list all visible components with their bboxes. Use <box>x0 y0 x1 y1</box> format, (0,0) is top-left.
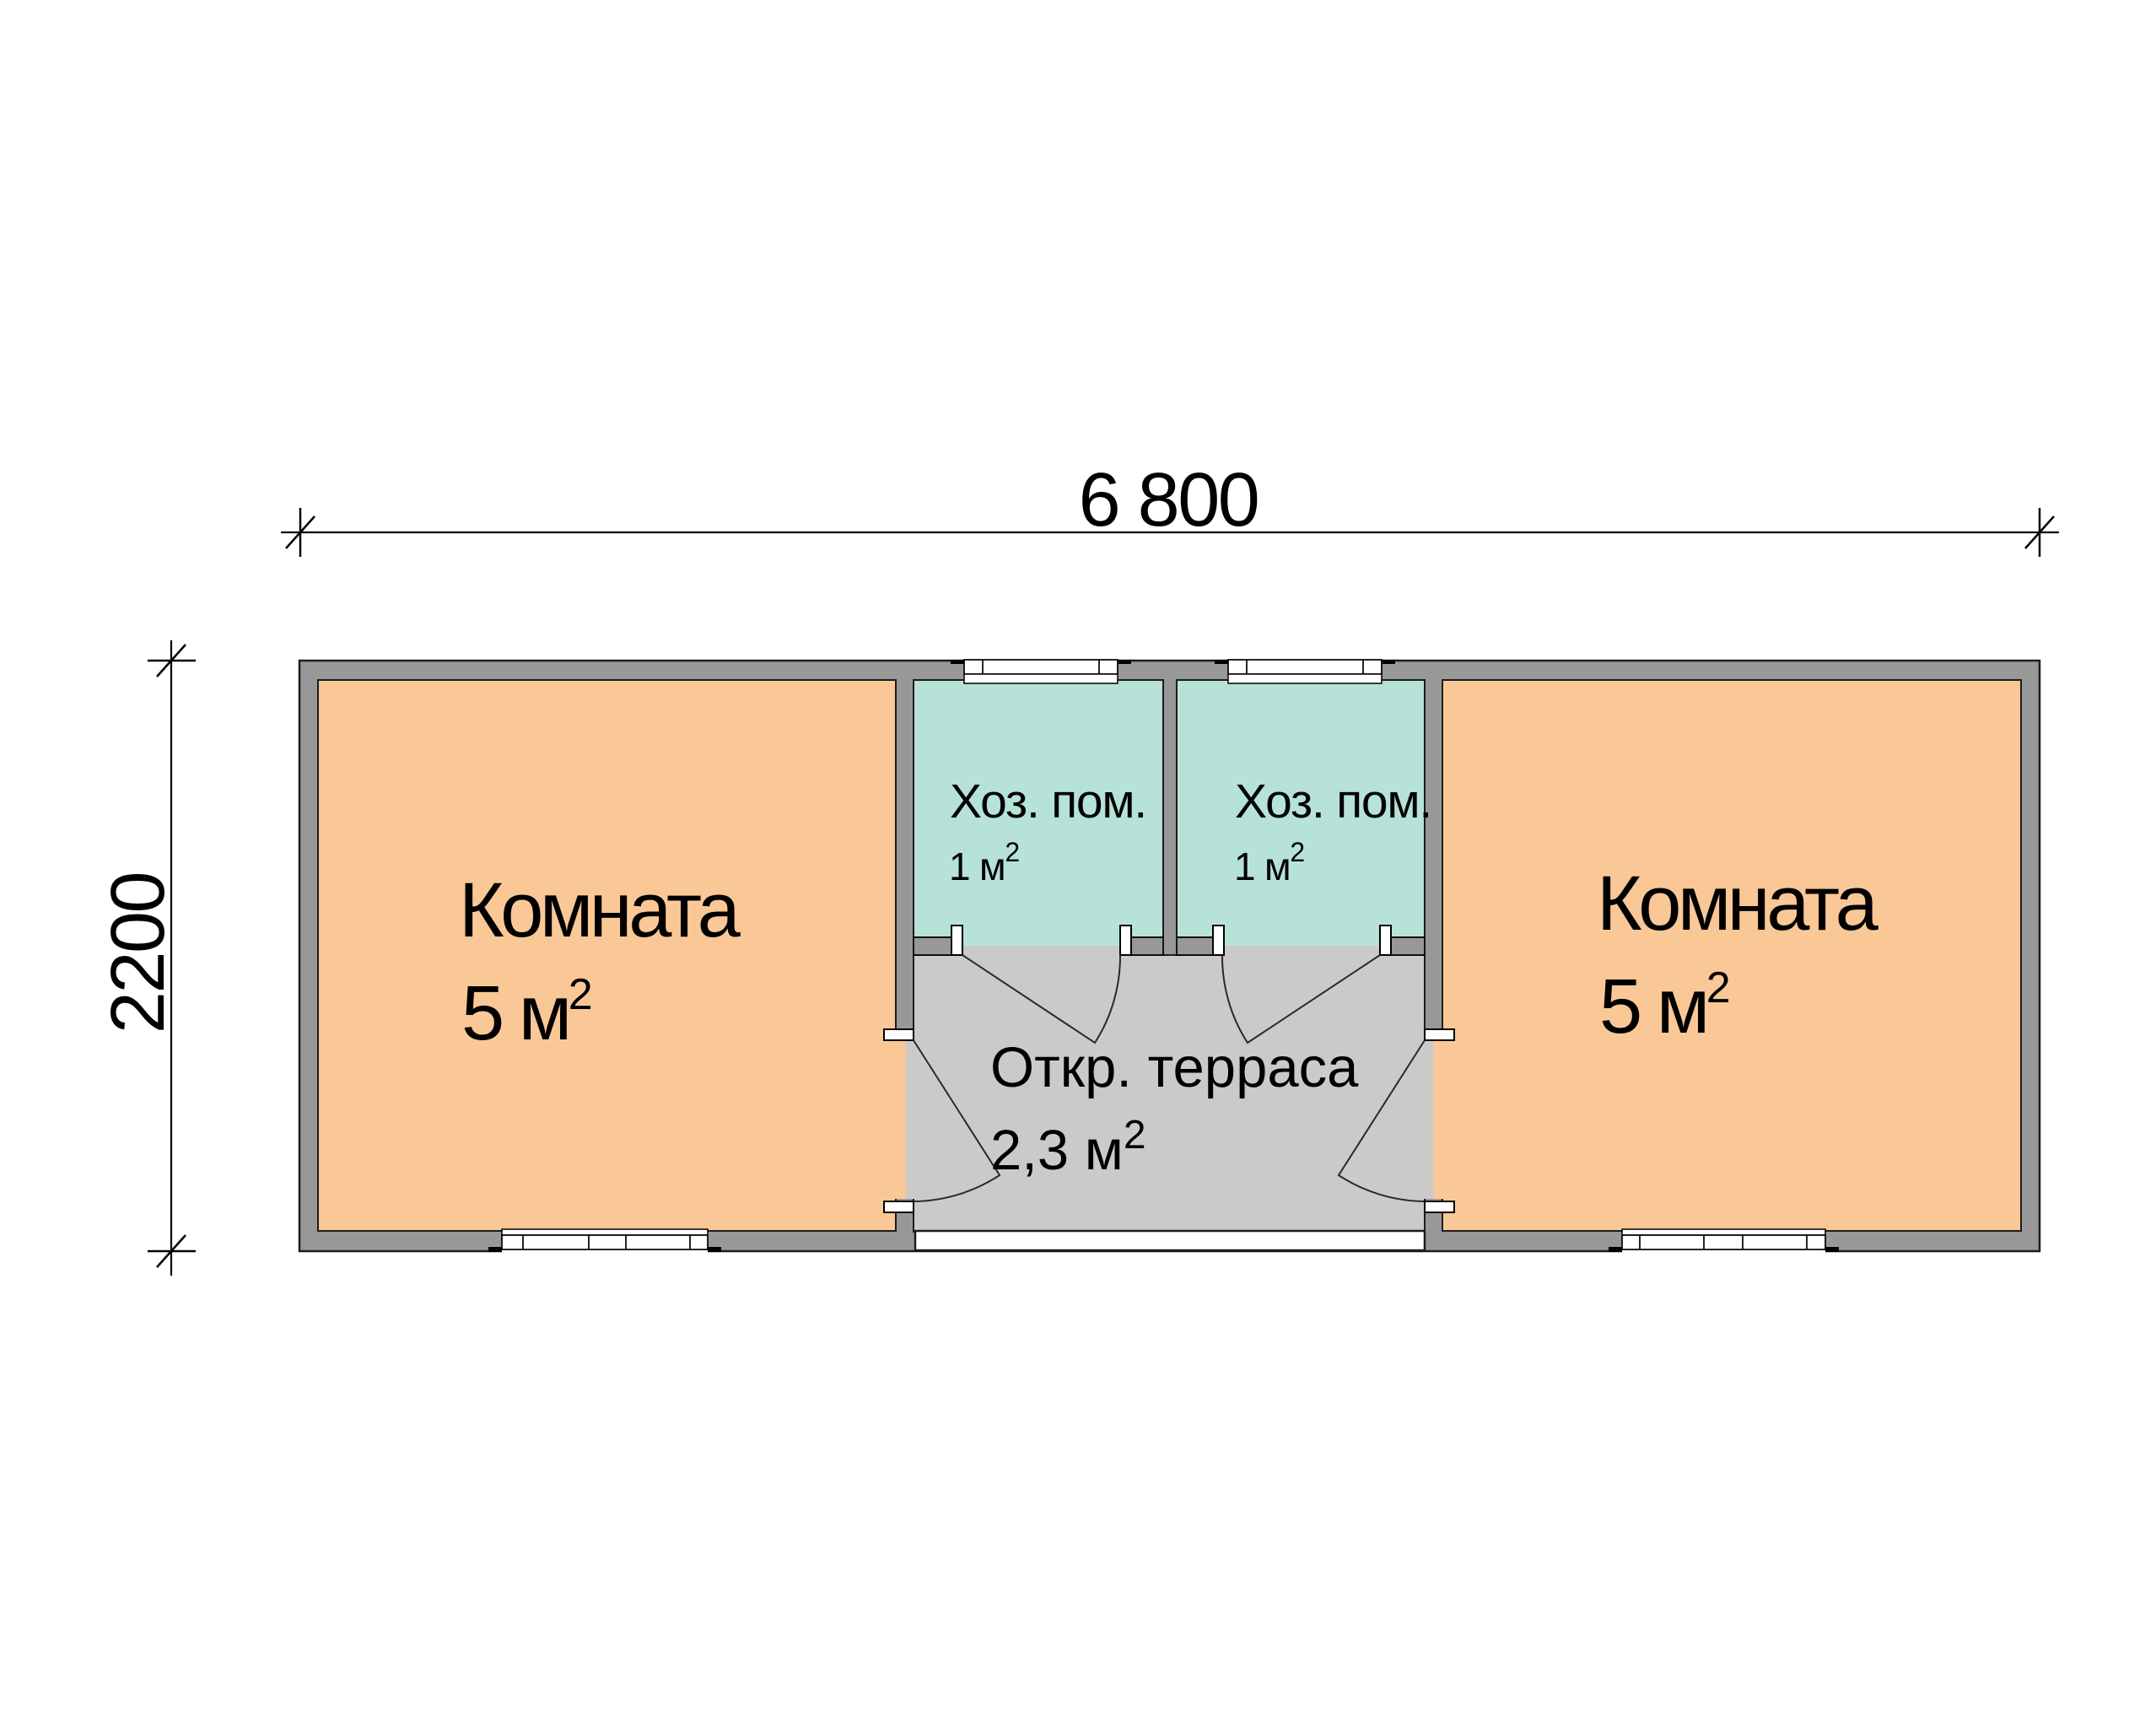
svg-text:6 800: 6 800 <box>1079 458 1259 542</box>
svg-text:Хоз. пом.: Хоз. пом. <box>1235 774 1431 828</box>
svg-text:Комната: Комната <box>1597 861 1879 947</box>
svg-text:Хоз. пом.: Хоз. пом. <box>950 774 1146 828</box>
svg-text:Откр. терраса: Откр. терраса <box>990 1036 1359 1099</box>
svg-text:2,3 м2: 2,3 м2 <box>990 1113 1146 1182</box>
svg-text:Комната: Комната <box>459 867 741 953</box>
svg-text:2200: 2200 <box>96 873 181 1034</box>
